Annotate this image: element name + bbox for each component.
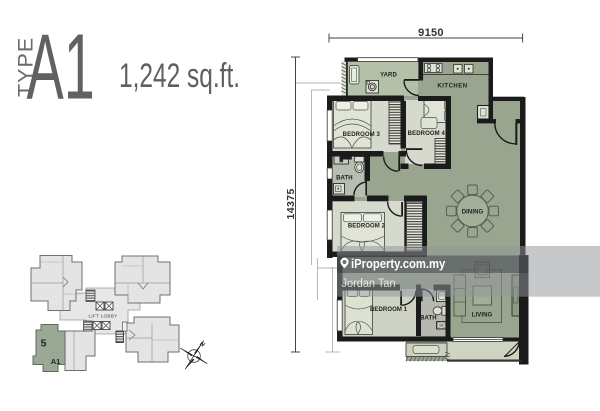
svg-text:BATH: BATH <box>420 316 437 322</box>
svg-text:BEDROOM 1: BEDROOM 1 <box>370 307 408 313</box>
svg-text:DINING: DINING <box>462 209 484 215</box>
svg-text:5: 5 <box>41 338 47 350</box>
svg-text:9150: 9150 <box>418 27 444 39</box>
svg-text:BATH: BATH <box>336 176 353 182</box>
svg-text:LIFT LOBBY: LIFT LOBBY <box>89 314 118 319</box>
svg-text:Jordan Tan: Jordan Tan <box>342 276 396 290</box>
svg-text:BEDROOM 4: BEDROOM 4 <box>408 131 446 137</box>
svg-text:14375: 14375 <box>285 188 297 219</box>
svg-text:LIVING: LIVING <box>472 313 493 319</box>
svg-text:KITCHEN: KITCHEN <box>437 83 467 89</box>
svg-text:1,242 sq.ft.: 1,242 sq.ft. <box>119 57 240 95</box>
svg-text:BEDROOM 2: BEDROOM 2 <box>348 224 386 230</box>
svg-text:iProperty.com.my: iProperty.com.my <box>351 256 446 271</box>
svg-text:A1: A1 <box>51 357 61 366</box>
svg-text:BEDROOM 3: BEDROOM 3 <box>343 132 381 138</box>
svg-text:A1: A1 <box>27 16 95 119</box>
svg-text:YARD: YARD <box>380 72 397 78</box>
